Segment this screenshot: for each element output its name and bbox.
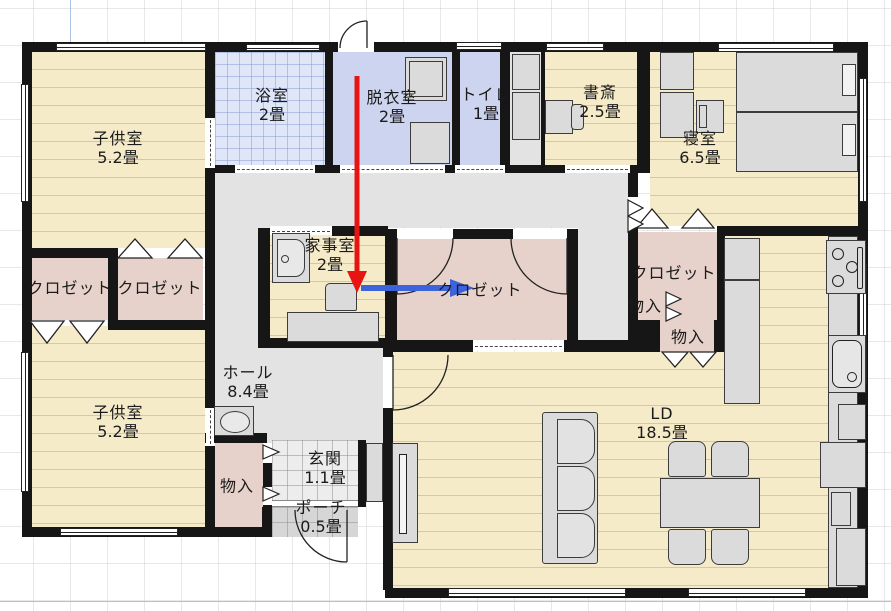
room-label-kaji: 家事室2畳 [304,236,355,274]
wall-segment [22,248,116,258]
shoe-cabinet [366,443,383,502]
tall-cabinet [724,238,760,280]
desk [545,100,573,134]
window [859,78,867,202]
wall-segment [385,229,397,348]
room-label-toilet: トイレ1畳 [460,85,511,123]
room-label-monoA: 物入 [628,297,662,316]
wall-segment [567,229,578,348]
wall-segment [637,42,650,173]
washbasin [214,406,254,436]
tv [399,454,407,534]
wall-segment [262,507,272,537]
room-label-kodomo1: 子供室5.2畳 [92,129,143,167]
window [21,84,29,202]
wall-segment [564,340,638,352]
wall-segment [725,226,858,236]
room-label-bath: 浴室2畳 [255,86,289,124]
room-label-shosai: 書斎2.5畳 [579,83,620,121]
wall-segment [332,226,388,236]
wall-segment [383,340,393,357]
kitchen-sink [828,335,866,393]
room-label-genkan: 玄関1.1畳 [304,449,345,487]
room-label-shinshitsu: 寝室6.5畳 [679,129,720,167]
cabinet [820,442,866,488]
sofa-cushion [557,466,595,511]
wall-segment [108,320,208,330]
desk [287,312,379,342]
grid-accent-line [0,601,891,602]
sliding-door-datsui [340,165,445,173]
window [718,43,834,52]
dining-chair [668,529,706,565]
floor-plan: 子供室5.2畳 浴室2畳 脱衣室2畳 トイレ1畳 書斎2.5畳 寝室6.5畳 ク… [0,0,891,611]
grid-accent-line [70,0,71,42]
window [60,528,178,536]
wall-segment [714,320,724,352]
wall-segment [445,165,455,173]
wall-segment [215,165,235,173]
tall-cabinet [724,280,760,404]
cabinet [831,492,851,526]
room-label-porch: ポーチ0.5畳 [295,498,346,536]
room-label-kodomo2: 子供室5.2畳 [92,403,143,441]
cabinet [838,404,866,440]
wall-segment [205,42,215,118]
room-label-closet1: クロゼット [27,279,112,298]
room-label-monoC: 物入 [220,477,254,496]
window [546,43,604,51]
cabinet [512,54,540,90]
cabinet [660,52,694,90]
room-label-closet3: クロゼット [631,264,716,283]
room-label-datsui: 脱衣室2畳 [366,88,417,126]
dining-chair [668,441,706,477]
room-label-ld: LD18.5畳 [636,404,688,442]
window [21,352,29,492]
burner-icon [832,248,844,260]
pillow [842,124,856,156]
cabinet [410,122,450,164]
sliding-door-kodomo2 [206,408,214,446]
wall-segment [263,463,272,487]
wall-segment [315,165,340,173]
sliding-door-toilet [455,165,505,173]
opening-wic-right [513,229,567,239]
chair [325,283,357,311]
cabinet [512,92,540,140]
bed [736,112,858,172]
opening-hall-ld [383,357,393,408]
faucet-icon [847,372,857,382]
room-ld-floor [393,352,858,588]
window [456,42,502,50]
sliding-door-shosai [565,165,630,173]
opening-wic-left [397,229,453,239]
burner-icon [832,275,844,287]
opening-kitchen-door [338,42,374,52]
room-label-wic: クロゼット [437,281,522,300]
wall-segment [452,52,460,165]
window [56,43,206,51]
sofa-cushion [557,513,595,558]
sofa-cushion [557,419,595,464]
wall-segment [205,168,215,408]
sliding-door-wic-south [473,341,564,350]
window [448,588,626,597]
dining-chair [711,529,749,565]
wall-segment [628,173,638,197]
dining-table [660,478,760,528]
room-label-closet2: クロゼット [117,279,202,298]
wall-segment [630,165,650,173]
sliding-door-bath [235,165,315,173]
window [688,588,806,597]
corridor-floor [215,173,638,228]
wall-segment [205,446,215,527]
dining-chair [711,441,749,477]
sliding-door-kodomo1 [206,118,214,168]
bed [736,52,858,112]
wall-segment [325,52,333,165]
room-label-monoB: 物入 [671,328,705,347]
wall-segment [385,340,473,352]
wall-segment [453,229,513,239]
stove [826,240,866,294]
wall-segment [358,440,366,507]
cabinet [836,528,866,586]
pillow [842,64,856,96]
room-label-hall: ホール8.4畳 [222,363,273,401]
window [246,44,320,51]
wall-segment [505,165,565,173]
wall-segment [258,228,270,340]
opening-bedroom [628,197,638,228]
